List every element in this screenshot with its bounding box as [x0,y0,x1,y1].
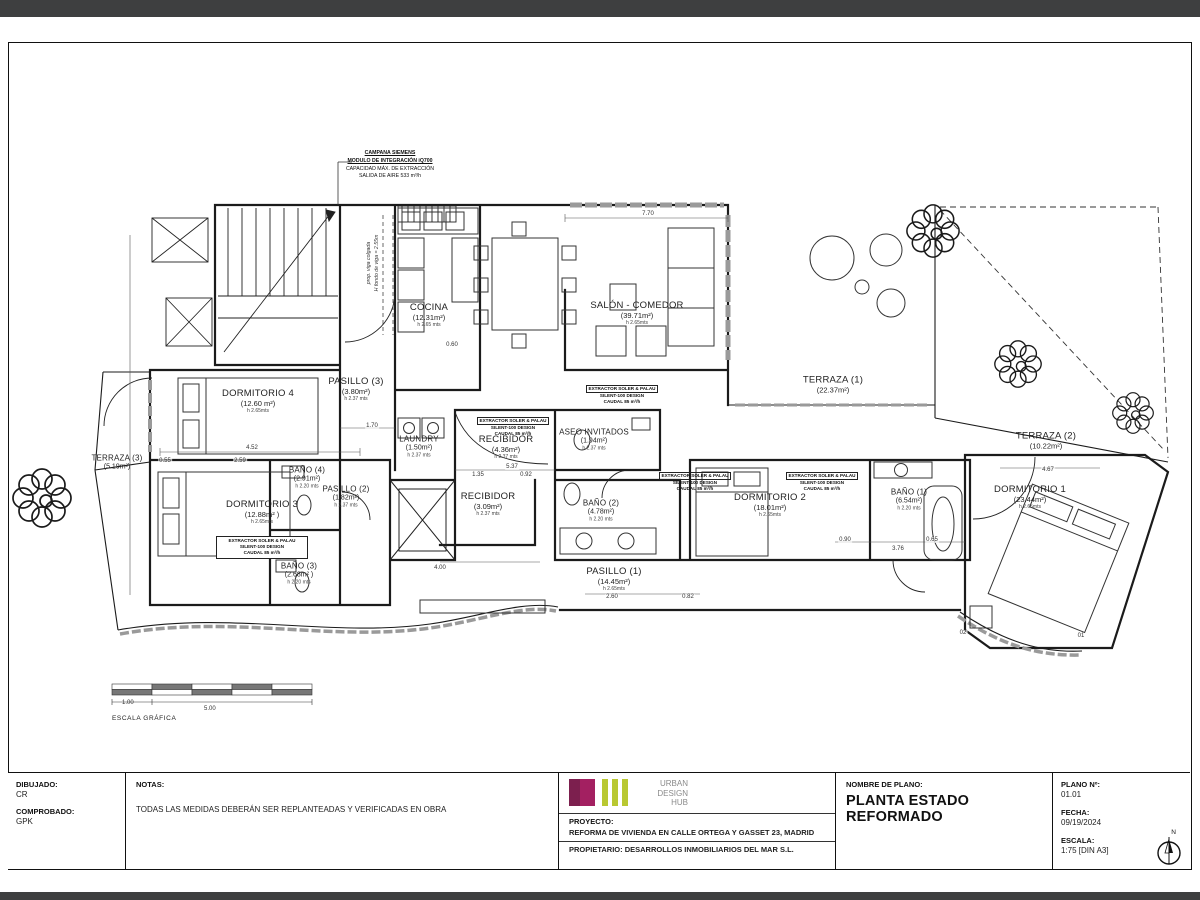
room-label-bano-1: BAÑO (1)(6.54m²)h 2.20 mts [870,488,948,511]
dimension-label: 5.37 [505,464,519,470]
project-name: REFORMA DE VIVIENDA EN CALLE ORTEGA Y GA… [569,828,825,837]
room-label-cocina: COCINA(12.31m²)h 2.65 mts [364,303,494,329]
dimension-label: 4.67 [1041,467,1055,473]
extractor-note-bano-1: EXTRACTOR SOLER & PALAUSILENT-100 DESIGN… [779,472,865,493]
plan-date: 09/19/2024 [1061,818,1182,827]
dimension-label: 1.70 [365,423,379,429]
room-label-pasillo-3: PASILLO (3)(3.80m²)h 2.37 mts [291,377,421,403]
dimension-label: 4.52 [245,445,259,451]
dimension-label: 4.00 [433,565,447,571]
company-logo: URBAN DESIGN HUB [569,779,825,809]
title-block-meta: PLANO Nº:01.01 FECHA:09/19/2024 ESCALA:1… [1052,773,1190,869]
dimension-label: 1.35 [471,472,485,478]
scale-bar-caption: ESCALA GRÁFICA [112,715,176,722]
sheet-border [8,42,1192,870]
dimension-label: 2.60 [605,594,619,600]
dimension-label: 0.65 [925,537,939,543]
room-label-pasillo-1: PASILLO (1)(14.45m²)h 2.65mts [549,567,679,593]
dimension-label: 2.59 [233,458,247,464]
room-label-aseo-invitados: ASEO INVITADOS(1.94m²)h 2.37 mts [555,428,633,451]
north-arrow-icon [1154,833,1184,867]
dimension-label: 0.82 [681,594,695,600]
room-label-dormitorio-1: DORMITORIO 1(23.44m²)h 2.65mts [965,485,1095,511]
owner-name: PROPIETARIO: DESARROLLOS INMOBILIARIOS D… [569,845,825,854]
scale-bar-major-label: 5.00 [204,706,216,712]
dimension-label: 7.70 [641,211,655,217]
notes-text: TODAS LAS MEDIDAS DEBERÁN SER REPLANTEAD… [136,805,548,814]
plan-title: PLANTA ESTADO REFORMADO [846,793,1042,825]
room-label-recibidor-436: RECIBIDOR(4.36m²)h 2.37 mts [441,435,571,461]
title-block-firm: URBAN DESIGN HUB PROYECTO: REFORMA DE VI… [558,773,835,869]
divider [559,813,836,814]
viewer-top-bar [0,0,1200,17]
dimension-label: 0.92 [519,472,533,478]
dimension-label: 0.90 [838,537,852,543]
title-block: DIBUJADO:CR COMPROBADO:GPK NOTAS: TODAS … [8,772,1190,869]
logo-wordmark: URBAN DESIGN HUB [636,779,688,808]
room-label-recibidor-309: RECIBIDOR(3.09m²)h 2.37 mts [423,492,553,518]
extractor-note-dormitorio-3: EXTRACTOR SOLER & PALAUSILENT-100 DESIGN… [216,536,308,559]
title-block-notes: NOTAS: TODAS LAS MEDIDAS DEBERÁN SER REP… [125,773,558,869]
dimension-label: 0.55 [158,458,172,464]
campana-note: CAMPANA SIEMENS MODULO DE INTEGRACIÓN iQ… [325,150,455,181]
room-label-dormitorio-2: DORMITORIO 2(18.01m²)h 2.65mts [705,493,835,519]
room-label-pasillo-2: PASILLO (2)(1.82m²)h 2.37 mts [307,485,385,508]
room-label-terraza-3: TERRAZA (3)(5.19m²) [78,455,156,472]
room-label-terraza-2: TERRAZA (2)(10.22m²) [981,431,1111,450]
dimension-label: 3.76 [891,546,905,552]
extractor-note-aseo: EXTRACTOR SOLER & PALAUSILENT-100 DESIGN… [579,385,665,406]
dimension-label: 0.60 [445,342,459,348]
logo-square-icon [569,779,595,806]
extractor-note-bano-2: EXTRACTOR SOLER & PALAUSILENT-100 DESIGN… [652,472,738,493]
title-block-plan-name: NOMBRE DE PLANO: PLANTA ESTADO REFORMADO [835,773,1052,869]
scale-bar-minor-label: 1.00 [122,700,134,706]
viewer-bottom-bar [0,892,1200,900]
room-label-bano-3: BAÑO (3)(2.68m² )h 2.20 mts [260,562,338,585]
plan-number: 01.01 [1061,790,1182,799]
room-label-bano-2: BAÑO (2)(4.78m²)h 2.20 mts [562,499,640,522]
dimension-label: 02 [959,630,968,636]
divider [559,841,836,842]
title-block-drawn-by: DIBUJADO:CR COMPROBADO:GPK [8,773,125,869]
room-label-terraza-1: TERRAZA (1)(22.37m²) [768,375,898,394]
dimension-label: 01 [1077,633,1086,639]
logo-bars-icon [602,779,628,806]
beam-note: prop. viga colgada H fondo de viga = 2.5… [366,235,382,292]
extractor-note-recibidor: EXTRACTOR SOLER & PALAUSILENT-100 DESIGN… [470,417,556,438]
room-label-salon-comedor: SALÓN - COMEDOR(39.71m²)h 2.65mts [572,301,702,327]
